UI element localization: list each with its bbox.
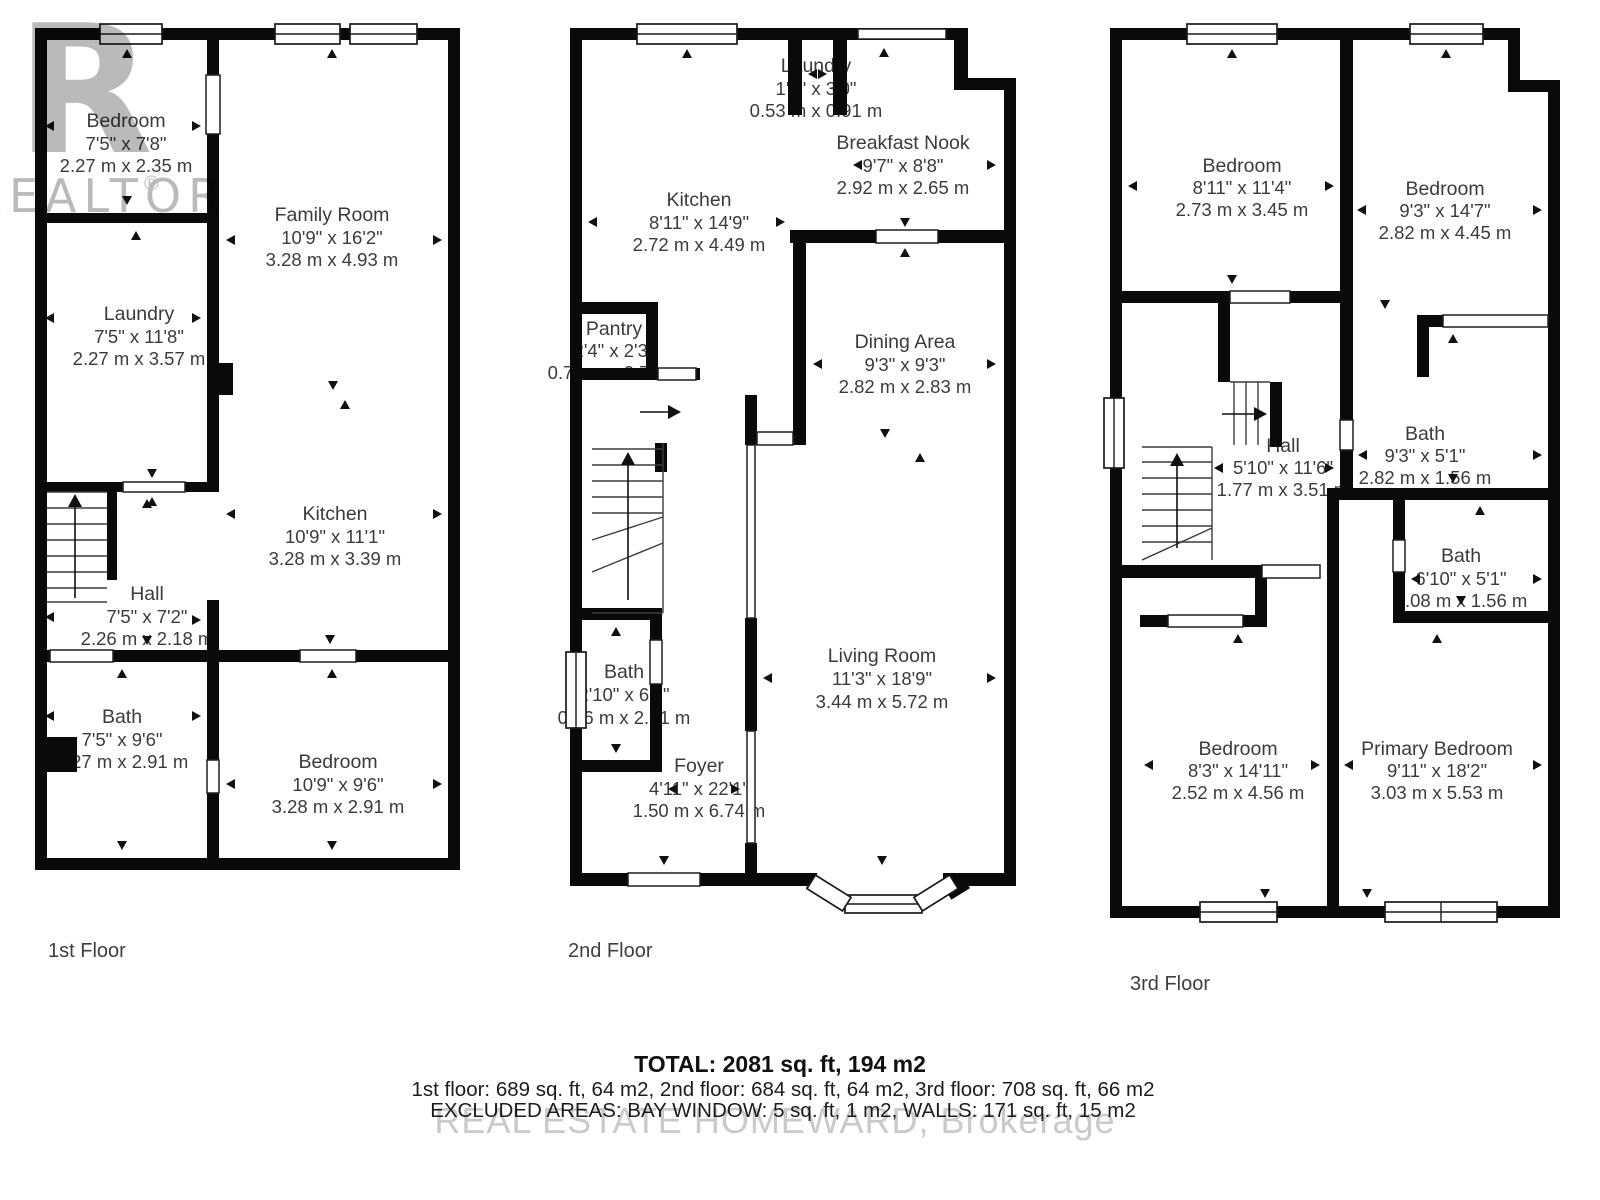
room-dim-ft: 5'10" x 11'6" — [1233, 457, 1333, 478]
room-dim-ft: 7'5" x 11'8" — [94, 326, 184, 347]
stairs-up-arrow-icon — [621, 452, 635, 465]
dimension-arrow-icon — [1432, 634, 1442, 643]
realtor-logo-icon: R — [16, 0, 153, 194]
room-label: Bath — [604, 661, 644, 683]
dimension-arrow-icon — [147, 497, 157, 506]
dimension-arrow-icon — [1260, 889, 1270, 898]
dimension-arrow-icon — [327, 49, 337, 58]
dimension-arrow-icon — [588, 217, 597, 227]
dimension-arrow-icon — [1475, 506, 1485, 515]
stairs-right-arrow-icon — [1254, 407, 1267, 421]
summary-floors: 1st floor: 689 sq. ft, 64 m2, 2nd floor:… — [412, 1078, 1155, 1101]
room-label: Dining Area — [855, 331, 956, 353]
room-dim-ft: 7'5" x 9'6" — [82, 729, 163, 750]
room-label: Bedroom — [1202, 155, 1281, 177]
dimension-arrow-icon — [877, 856, 887, 865]
dimension-arrow-icon — [433, 509, 442, 519]
room-dim-m: 3.03 m x 5.53 m — [1371, 782, 1504, 803]
dimension-arrow-icon — [1533, 205, 1542, 215]
dimension-arrow-icon — [328, 381, 338, 390]
dimension-arrow-icon — [1380, 300, 1390, 309]
watermarks: R REALTOR ® REAL ESTATE HOMEWARD, Broker… — [0, 0, 1116, 1141]
dimension-arrow-icon — [1533, 450, 1542, 460]
dimension-arrow-icon — [1357, 205, 1366, 215]
dimension-arrow-icon — [987, 673, 996, 683]
dimension-arrow-icon — [147, 469, 157, 478]
dimension-arrow-icon — [1533, 574, 1542, 584]
dimension-arrow-icon — [1227, 275, 1237, 284]
dimension-arrow-icon — [325, 635, 335, 644]
room-dim-ft: 11'3" x 18'9" — [832, 668, 932, 689]
room-dim-ft: 9'3" x 5'1" — [1385, 445, 1466, 466]
dimension-arrow-icon — [915, 453, 925, 462]
dimension-arrow-icon — [226, 235, 235, 245]
room-dim-m: 2.52 m x 4.56 m — [1172, 782, 1305, 803]
room-dim-ft: 9'7" x 8'8" — [863, 155, 944, 176]
dimension-arrow-icon — [1128, 181, 1137, 191]
room-label: Bath — [102, 706, 142, 728]
room-dim-ft: 10'9" x 11'1" — [285, 526, 385, 547]
dimension-arrow-icon — [1233, 634, 1243, 643]
room-dim-m: 2.73 m x 3.45 m — [1176, 199, 1309, 220]
floor3-caption: 3rd Floor — [1130, 973, 1210, 995]
realtor-logo-text: REALTOR — [0, 169, 227, 223]
dimension-arrow-icon — [192, 615, 201, 625]
dimension-arrow-icon — [117, 841, 127, 850]
room-label: Bath — [1405, 423, 1445, 445]
dimension-arrow-icon — [131, 231, 141, 240]
floor1-caption: 1st Floor — [48, 940, 126, 962]
dimension-arrow-icon — [1441, 49, 1451, 58]
room-label: Bedroom — [1405, 178, 1484, 200]
room-label: Laundry — [104, 303, 175, 325]
dimension-arrow-icon — [1325, 181, 1334, 191]
floor-captions: 1st Floor 2nd Floor 3rd Floor — [48, 940, 1210, 995]
dimension-arrow-icon — [879, 48, 889, 57]
door-swing-arrow-icon — [668, 405, 681, 419]
dimension-arrow-icon — [340, 400, 350, 409]
dimension-arrow-icon — [1344, 760, 1353, 770]
dimension-arrow-icon — [226, 779, 235, 789]
room-dim-m: 2.27 m x 3.57 m — [73, 348, 206, 369]
dimension-arrow-icon — [611, 627, 621, 636]
floor2-caption: 2nd Floor — [568, 940, 653, 962]
dimension-arrow-icon — [813, 359, 822, 369]
dimension-arrow-icon — [327, 669, 337, 678]
dimension-arrow-icon — [1362, 889, 1372, 898]
room-dim-ft: 8'11" x 11'4" — [1193, 177, 1292, 198]
dimension-arrow-icon — [433, 235, 442, 245]
room-dim-m: 3.28 m x 4.93 m — [266, 249, 399, 270]
room-dim-m: 2.72 m x 4.49 m — [633, 234, 766, 255]
room-dim-ft: 6'10" x 5'1" — [1415, 568, 1506, 589]
room-label: Bedroom — [1198, 738, 1277, 760]
brokerage-watermark: REAL ESTATE HOMEWARD, Brokerage — [434, 1100, 1115, 1141]
dimension-arrow-icon — [659, 856, 669, 865]
room-dim-m: 2.82 m x 1.56 m — [1359, 467, 1492, 488]
dimension-arrow-icon — [987, 160, 996, 170]
dimension-arrow-icon — [1311, 760, 1320, 770]
stairs-up-arrow-icon — [68, 494, 82, 507]
dimension-arrow-icon — [1448, 334, 1458, 343]
room-label: Family Room — [275, 204, 390, 226]
room-dim-m: 2.82 m x 4.45 m — [1379, 222, 1512, 243]
room-dim-m: 2.92 m x 2.65 m — [837, 177, 970, 198]
room-dim-ft: 9'11" x 18'2" — [1387, 760, 1487, 781]
dimension-arrow-icon — [900, 218, 910, 227]
room-dim-ft: 9'3" x 14'7" — [1399, 200, 1490, 221]
room-dim-ft: 8'11" x 14'9" — [649, 212, 749, 233]
dimension-arrow-icon — [226, 509, 235, 519]
room-dim-m: 1.50 m x 6.74 m — [633, 800, 766, 821]
room-label: Foyer — [674, 755, 724, 777]
room-dim-m: 3.28 m x 3.39 m — [269, 548, 402, 569]
room-dim-ft: 2'4" x 2'3" — [574, 340, 655, 361]
dimension-arrow-icon — [776, 217, 785, 227]
dimension-arrow-icon — [1358, 450, 1367, 460]
room-label: Living Room — [828, 645, 936, 667]
dimension-arrow-icon — [853, 160, 862, 170]
room-label: Bedroom — [298, 751, 377, 773]
dimension-arrow-icon — [192, 121, 201, 131]
dimension-arrow-icon — [880, 429, 890, 438]
dimension-arrow-icon — [682, 49, 692, 58]
dimension-arrow-icon — [327, 841, 337, 850]
room-label: Kitchen — [302, 503, 367, 525]
room-label: Bath — [1441, 545, 1481, 567]
room-label: Hall — [130, 583, 164, 605]
room-dim-ft: 9'3" x 9'3" — [865, 354, 946, 375]
room-dim-ft: 7'5" x 7'2" — [107, 606, 188, 627]
room-dim-ft: 10'9" x 16'2" — [281, 227, 382, 248]
room-dim-m: 0.53 m x 0.91 m — [750, 100, 883, 121]
staircase — [592, 405, 681, 613]
dimension-arrow-icon — [1227, 49, 1237, 58]
room-dim-ft: 8'3" x 14'11" — [1188, 760, 1288, 781]
floorplan-canvas: Bedroom 7'5" x 7'8" 2.27 m x 2.35 m Fami… — [0, 0, 1600, 1200]
room-dim-ft: 10'9" x 9'6" — [292, 774, 383, 795]
room-dim-m: 3.28 m x 2.91 m — [272, 796, 405, 817]
room-label: Breakfast Nook — [836, 132, 970, 154]
dimension-arrow-icon — [763, 673, 772, 683]
stairs-up-arrow-icon — [1170, 453, 1184, 466]
dimension-arrow-icon — [192, 711, 201, 721]
dimension-arrow-icon — [1144, 760, 1153, 770]
room-dim-m: 2.82 m x 2.83 m — [839, 376, 972, 397]
dimension-arrow-icon — [117, 669, 127, 678]
dimension-arrow-icon — [433, 779, 442, 789]
floorplan-page: Bedroom 7'5" x 7'8" 2.27 m x 2.35 m Fami… — [0, 0, 1600, 1200]
staircase — [47, 492, 107, 602]
floor2-structure — [566, 24, 1016, 913]
registered-mark-icon: ® — [144, 173, 159, 195]
summary-total: TOTAL: 2081 sq. ft, 194 m2 — [634, 1051, 926, 1077]
dimension-arrow-icon — [1214, 463, 1223, 473]
dimension-arrow-icon — [192, 313, 201, 323]
dimension-arrow-icon — [900, 248, 910, 257]
room-label: Primary Bedroom — [1361, 738, 1513, 760]
room-label: Kitchen — [666, 189, 731, 211]
dimension-arrow-icon — [1533, 760, 1542, 770]
dimension-arrow-icon — [611, 744, 621, 753]
dimension-arrow-icon — [987, 359, 996, 369]
room-label: Pantry — [586, 318, 643, 340]
room-dim-m: 3.44 m x 5.72 m — [816, 691, 949, 712]
